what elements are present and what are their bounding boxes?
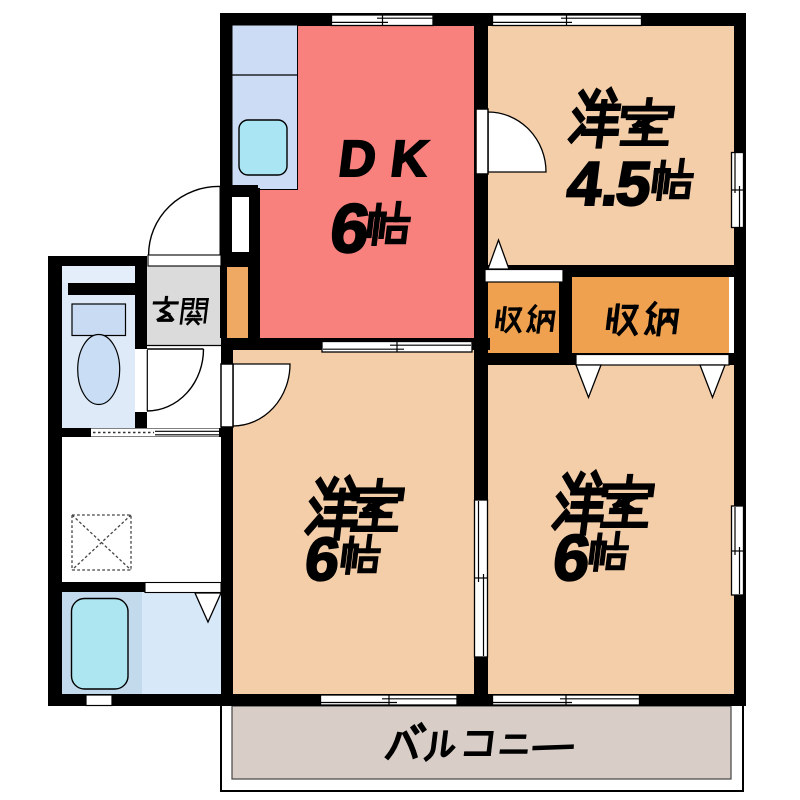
- svg-text:K: K: [388, 130, 432, 187]
- svg-text:D: D: [336, 130, 380, 187]
